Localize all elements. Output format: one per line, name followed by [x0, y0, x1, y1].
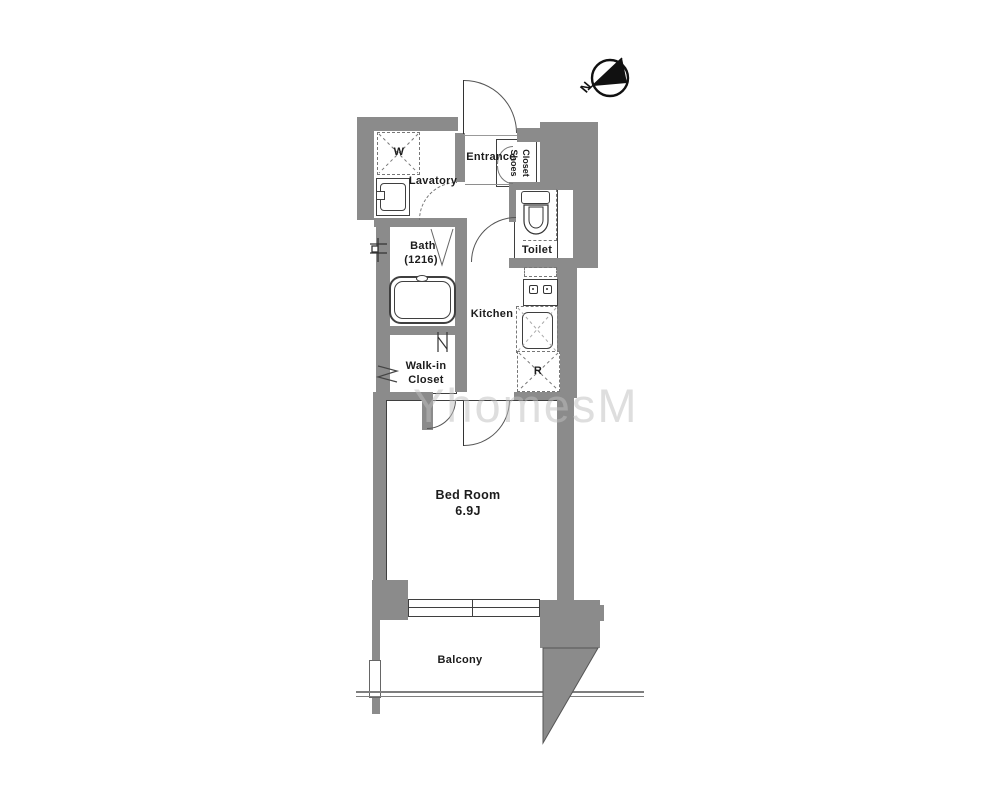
north-compass-icon: N [577, 58, 628, 96]
structure-triangle [543, 648, 598, 743]
closet-shelf-icon [378, 366, 397, 382]
toilet-bowl [524, 205, 548, 234]
sink-counter-cross [518, 308, 556, 351]
bedroom-label: Bed Room [436, 488, 501, 502]
bath-label: Bath [410, 240, 436, 252]
shower-fixture-icon [370, 238, 387, 262]
shoes-closet-label-line2: Closet [521, 149, 531, 177]
bath-size-label: (1216) [404, 254, 438, 266]
bedroom-size-label: 6.9J [455, 504, 481, 518]
refrigerator-symbol-label: R [534, 365, 542, 377]
balcony-label: Balcony [438, 654, 483, 666]
floor-plan: N Entrance Shoes Closet Lavatory W Bath … [0, 0, 999, 801]
walk-in-closet-label-line1: Walk-in [406, 360, 447, 372]
shoes-closet-label-line1: Shoes [509, 149, 519, 176]
hanger-pipe-icon [438, 332, 447, 352]
washer-symbol-label: W [394, 146, 405, 158]
lavatory-label: Lavatory [409, 175, 457, 187]
toilet-label: Toilet [522, 244, 552, 256]
watermark-text: YhomesM [413, 378, 639, 433]
kitchen-label: Kitchen [471, 308, 513, 320]
